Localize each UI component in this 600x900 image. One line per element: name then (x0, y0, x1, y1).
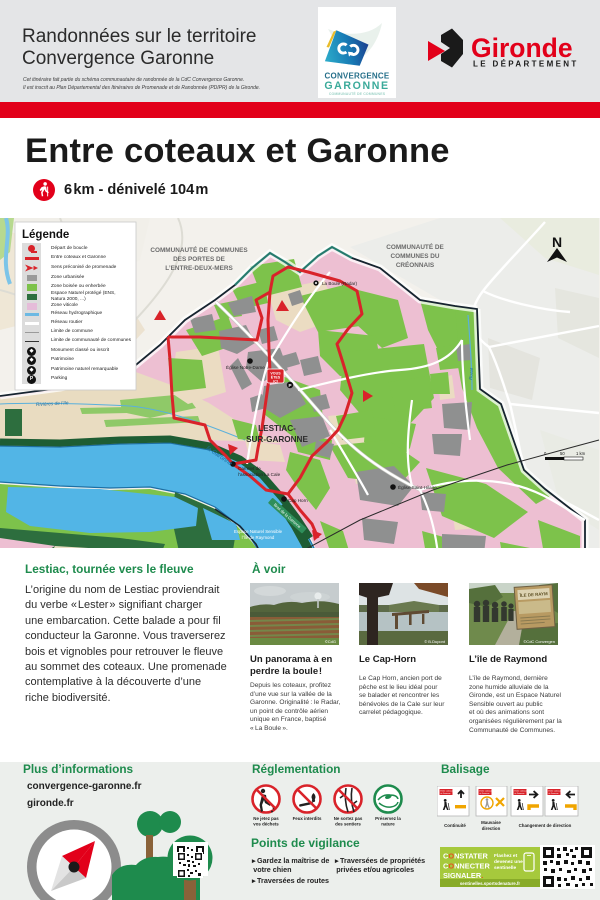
svg-text:Église Saint-Hilaire: Église Saint-Hilaire (398, 484, 437, 490)
svg-text:Continuité: Continuité (444, 823, 466, 828)
svg-text:sentinelles.sportsdenature.fr: sentinelles.sportsdenature.fr (460, 881, 521, 886)
svg-text:Gironde: Gironde (471, 33, 573, 63)
svg-text:L’ENTRE-DEUX-MERS: L’ENTRE-DEUX-MERS (165, 265, 233, 272)
svg-text:COMMUNAUTÉ DE: COMMUNAUTÉ DE (386, 242, 444, 251)
svg-text:et Garonne: et Garonne (441, 792, 452, 795)
svg-text:GARONNE: GARONNE (324, 80, 389, 92)
svg-text:LESTIAC-: LESTIAC- (258, 424, 296, 433)
svg-text:Changement de direction: Changement de direction (519, 823, 572, 828)
svg-text:Flashez et: Flashez et (494, 853, 518, 859)
svg-text:et Garonne: et Garonne (549, 792, 560, 795)
svg-text:l’Île de Raymond: l’Île de Raymond (242, 535, 275, 540)
svg-text:nature: nature (381, 822, 395, 827)
svg-text:direction: direction (482, 826, 501, 831)
svg-text:des sentiers: des sentiers (335, 822, 361, 827)
svg-text:Espace Naturel Sensible: Espace Naturel Sensible (234, 529, 283, 534)
svg-text:COMMUNAUTÉ DE COMMUNES: COMMUNAUTÉ DE COMMUNES (150, 245, 248, 254)
svg-text:vos déchets: vos déchets (253, 822, 279, 827)
svg-text:CRÉONNAIS: CRÉONNAIS (396, 260, 435, 269)
svg-text:Ne jetez pas: Ne jetez pas (253, 816, 279, 821)
svg-text:50: 50 (560, 451, 565, 456)
svg-text:l’association La Cale: l’association La Cale (238, 472, 281, 477)
svg-text:© B.Dupont: © B.Dupont (424, 639, 446, 644)
svg-text:La Boule (Radar): La Boule (Radar) (322, 281, 357, 286)
svg-text:Feux interdits: Feux interdits (293, 816, 322, 821)
svg-text:CONSTATER: CONSTATER (443, 852, 489, 861)
svg-text:Préservez la: Préservez la (375, 816, 401, 821)
svg-text:Église Notre-Dame: Église Notre-Dame (226, 364, 265, 370)
svg-text:sentinelle: sentinelle (494, 865, 516, 871)
svg-text:©CdG: ©CdG (325, 639, 336, 644)
svg-text:Légende: Légende (22, 229, 69, 241)
svg-text:N: N (552, 234, 562, 250)
svg-text:devenez une: devenez une (494, 859, 523, 865)
svg-text:et Garonne: et Garonne (515, 792, 526, 795)
svg-text:CONNECTER: CONNECTER (443, 862, 490, 871)
svg-text:P: P (288, 383, 291, 388)
svg-text:SUR-GARONNE: SUR-GARONNE (246, 435, 308, 444)
svg-text:Carrelet de: Carrelet de (238, 466, 261, 471)
svg-text:Ne sortez pas: Ne sortez pas (334, 816, 363, 821)
svg-text:Mauvaise: Mauvaise (481, 820, 501, 825)
svg-text:COMMUNAUTÉ DE COMMUNES: COMMUNAUTÉ DE COMMUNES (329, 91, 386, 96)
svg-text:Cap Horn: Cap Horn (288, 498, 308, 503)
svg-text:DES PORTES DE: DES PORTES DE (173, 256, 226, 263)
svg-text:1 km: 1 km (576, 451, 586, 456)
svg-text:©CdC Convergen: ©CdC Convergen (523, 639, 555, 644)
svg-text:ICI: ICI (273, 379, 278, 383)
svg-text:et Garonne: et Garonne (480, 792, 491, 795)
svg-text:SIGNALER.: SIGNALER. (443, 871, 483, 880)
svg-text:LE DÉPARTEMENT: LE DÉPARTEMENT (473, 60, 578, 69)
svg-text:COMMUNES DU: COMMUNES DU (391, 253, 440, 260)
